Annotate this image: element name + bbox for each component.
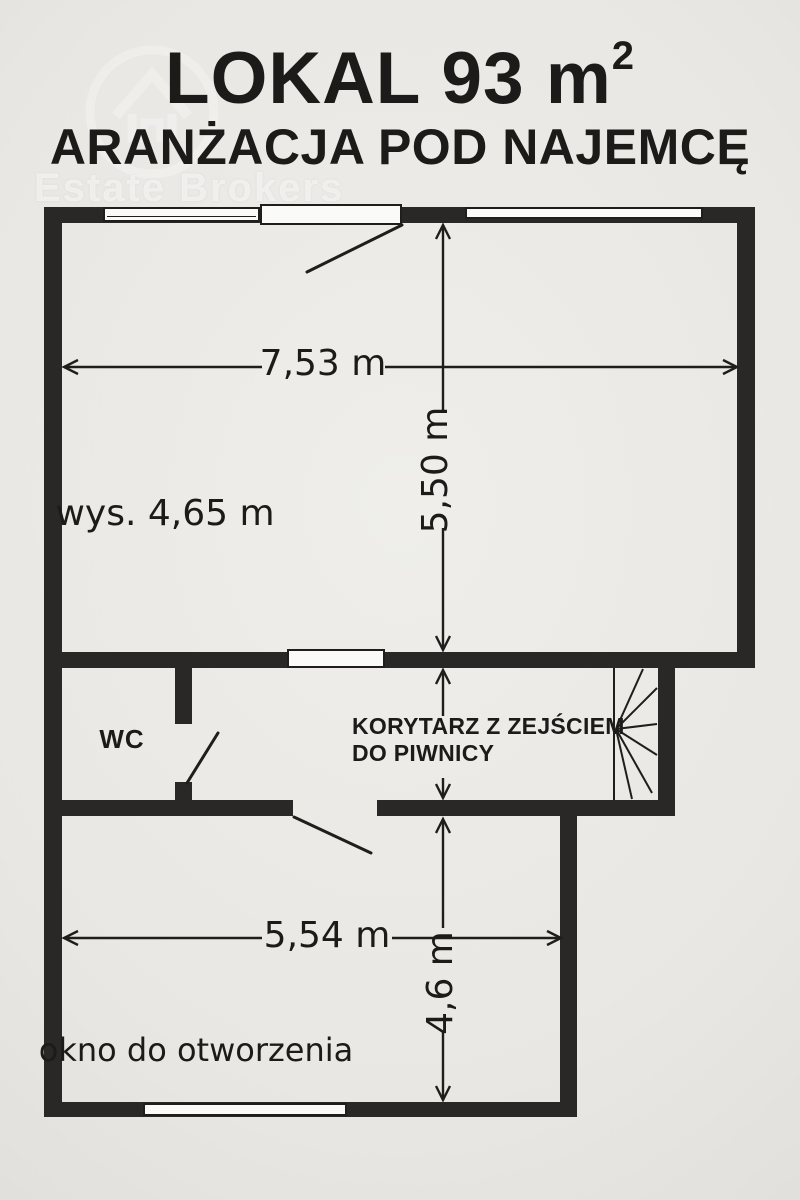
wc-room-label: WC — [99, 726, 144, 752]
main-room-depth-label: 5,50 m — [418, 407, 454, 534]
ceiling-height-label: wys. 4,65 m — [55, 496, 274, 532]
lower-room-width-label: 5,54 m — [264, 918, 391, 954]
wc-door-swing — [187, 733, 218, 783]
corridor-room-label: KORYTARZ Z ZEJŚCIEM DO PIWNICY — [352, 713, 625, 767]
lower-room-door-swing — [294, 817, 371, 853]
corridor-label-line1: KORYTARZ Z ZEJŚCIEM — [352, 713, 625, 740]
lower-room-depth-label: 4,6 m — [423, 931, 459, 1035]
floor-plan-page: Estate Brokers LOKAL 93 m2 ARANŻACJA POD… — [0, 0, 800, 1200]
entrance-door-swing — [307, 225, 402, 272]
main-room-width-label: 7,53 m — [260, 346, 387, 382]
plan-linework — [0, 0, 800, 1200]
openable-window-note: okno do otworzenia — [39, 1034, 354, 1066]
dimension-arrow-main-width — [64, 360, 737, 374]
corridor-label-line2: DO PIWNICY — [352, 740, 625, 767]
